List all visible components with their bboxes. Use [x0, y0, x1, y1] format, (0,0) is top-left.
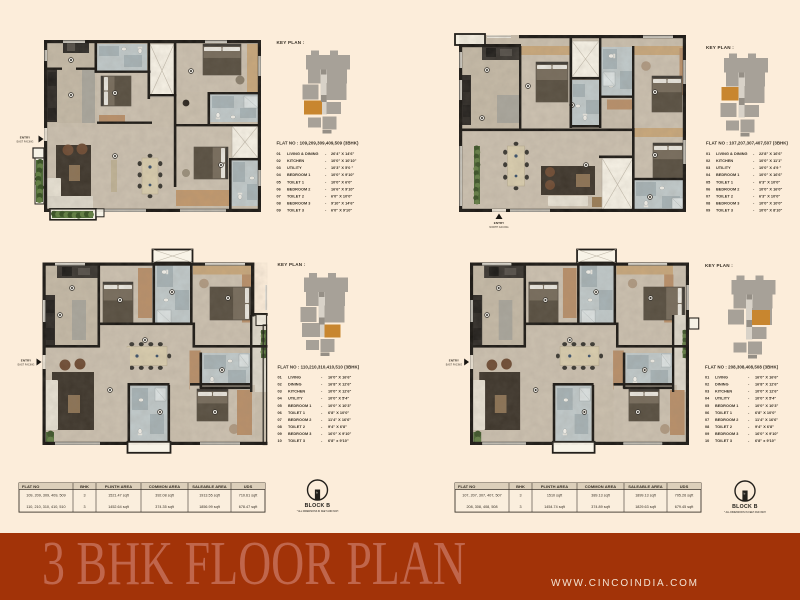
svg-text:11'4" X 16'6": 11'4" X 16'6" — [328, 418, 351, 422]
svg-text:01: 01 — [705, 376, 709, 380]
svg-text:10'0" X 12'6": 10'0" X 12'6" — [755, 390, 779, 394]
svg-text:BEDROOM 3: BEDROOM 3 — [288, 432, 311, 436]
svg-text:TOILET 1: TOILET 1 — [716, 180, 733, 184]
svg-text:3: 3 — [83, 505, 85, 509]
svg-text:LIVING & DINING: LIVING & DINING — [716, 152, 748, 156]
svg-text:705.26 sqft: 705.26 sqft — [675, 494, 693, 498]
svg-text:KITCHEN: KITCHEN — [715, 390, 732, 394]
svg-text:PLINTH AREA: PLINTH AREA — [105, 484, 132, 489]
svg-text:16'0" X 16'6": 16'0" X 16'6" — [328, 376, 352, 380]
svg-text:BHK: BHK — [80, 484, 89, 489]
svg-text:06: 06 — [706, 187, 710, 191]
svg-text:02: 02 — [278, 383, 282, 387]
svg-text:1454.74 sqft: 1454.74 sqft — [544, 505, 565, 509]
svg-text:392.08 sqft: 392.08 sqft — [155, 494, 173, 498]
svg-text:16'8" X 12'6": 16'8" X 12'6" — [755, 383, 779, 387]
svg-text:TOILET 1: TOILET 1 — [288, 411, 305, 415]
svg-text:09: 09 — [706, 209, 710, 213]
svg-text:10'0" X 12'6": 10'0" X 12'6" — [328, 390, 352, 394]
svg-text:10'0" X 16'6": 10'0" X 16'6" — [759, 173, 783, 177]
svg-text:KEY PLAN :: KEY PLAN : — [705, 263, 733, 268]
svg-text:9'4" X 6'8": 9'4" X 6'8" — [755, 425, 774, 429]
svg-text:10'0" X 9'10": 10'0" X 9'10" — [331, 173, 355, 177]
svg-text:EAST FACING: EAST FACING — [17, 140, 34, 143]
svg-text:TOILET 3: TOILET 3 — [716, 209, 733, 213]
svg-text:01: 01 — [278, 376, 282, 380]
svg-text:ENTRY: ENTRY — [449, 359, 459, 363]
svg-text:BEDROOM 3: BEDROOM 3 — [715, 432, 738, 436]
svg-text:EAST FACING: EAST FACING — [446, 363, 462, 366]
svg-text:BEDROOM 1: BEDROOM 1 — [716, 173, 739, 177]
svg-text:10: 10 — [705, 439, 709, 443]
svg-text:6'8" X 10'0": 6'8" X 10'0" — [328, 411, 349, 415]
svg-text:TOILET 3: TOILET 3 — [287, 209, 304, 213]
svg-text:NORTH FACING: NORTH FACING — [489, 226, 508, 229]
svg-text:BEDROOM 2: BEDROOM 2 — [287, 187, 310, 191]
svg-text:FLAT NO : 107,207,307,407,507: FLAT NO : 107,207,307,407,507 (3BHK) — [706, 141, 788, 146]
svg-text:3 BHK FLOOR PLAN: 3 BHK FLOOR PLAN — [42, 530, 466, 598]
svg-text:TOILET 2: TOILET 2 — [715, 425, 732, 429]
svg-text:TOILET 1: TOILET 1 — [287, 180, 304, 184]
svg-text:10'0" X 10'3": 10'0" X 10'3" — [328, 404, 352, 408]
svg-text:1510 sqft: 1510 sqft — [547, 494, 562, 498]
svg-text:6'8" X 10'0": 6'8" X 10'0" — [755, 411, 776, 415]
svg-text:BEDROOM 3: BEDROOM 3 — [287, 202, 310, 206]
svg-text:BEDROOM 2: BEDROOM 2 — [715, 418, 738, 422]
svg-text:16'0" X 9'10": 16'0" X 9'10" — [755, 432, 779, 436]
svg-text:DINING: DINING — [288, 383, 302, 387]
svg-text:1856.99 sqft: 1856.99 sqft — [199, 505, 220, 509]
svg-text:* ALL DIMENSIONS IN FEET AND I: * ALL DIMENSIONS IN FEET AND INCH — [297, 510, 339, 513]
svg-text:COMMON AREA: COMMON AREA — [585, 484, 617, 489]
svg-text:FLAT NO: FLAT NO — [458, 484, 475, 489]
svg-text:1913.55 sqft: 1913.55 sqft — [199, 494, 220, 498]
svg-text:16'0" X 16'6": 16'0" X 16'6" — [755, 376, 779, 380]
svg-text:06: 06 — [277, 187, 281, 191]
svg-text:01: 01 — [706, 152, 710, 156]
svg-text:10'0" X 11'1": 10'0" X 11'1" — [759, 159, 782, 163]
svg-text:3: 3 — [519, 505, 521, 509]
svg-text:FLAT NO : 208,308,408,508 (3B: FLAT NO : 208,308,408,508 (3BHK) — [705, 365, 779, 370]
svg-text:05: 05 — [277, 180, 281, 184]
svg-text:16'0" X 9'10": 16'0" X 9'10" — [328, 432, 352, 436]
svg-text:10'0" X 10'0": 10'0" X 10'0" — [759, 202, 783, 206]
svg-text:10'0" X 5'4": 10'0" X 5'4" — [328, 397, 349, 401]
svg-text:SALEABLE AREA: SALEABLE AREA — [192, 484, 227, 489]
svg-text:107, 207, 307, 407, 507: 107, 207, 307, 407, 507 — [462, 494, 501, 498]
svg-text:10'0" X 8'10": 10'0" X 8'10" — [759, 209, 783, 213]
svg-text:TOILET 2: TOILET 2 — [287, 194, 304, 198]
svg-text:ENTRY: ENTRY — [21, 359, 32, 363]
svg-text:679.45 sqft: 679.45 sqft — [675, 505, 693, 509]
svg-text:EAST FACING: EAST FACING — [18, 363, 35, 366]
svg-text:LIVING: LIVING — [715, 376, 728, 380]
svg-text:BLOCK B: BLOCK B — [305, 503, 331, 509]
svg-text:KEY PLAN :: KEY PLAN : — [277, 40, 305, 45]
svg-text:KEY PLAN :: KEY PLAN : — [278, 262, 306, 267]
svg-text:10'0" X 10'10": 10'0" X 10'10" — [331, 159, 357, 163]
svg-text:03: 03 — [705, 390, 709, 394]
svg-text:374.35 sqft: 374.35 sqft — [155, 505, 173, 509]
svg-text:710.61 sqft: 710.61 sqft — [239, 494, 257, 498]
svg-text:03: 03 — [277, 166, 281, 170]
svg-text:UTILITY: UTILITY — [287, 166, 302, 170]
svg-text:DINING: DINING — [715, 383, 729, 387]
svg-text:10'0" X 5'4": 10'0" X 5'4" — [755, 397, 776, 401]
svg-text:9'4" X 6'8": 9'4" X 6'8" — [328, 425, 347, 429]
svg-text:KITCHEN: KITCHEN — [288, 390, 305, 394]
svg-text:TOILET 1: TOILET 1 — [715, 411, 732, 415]
svg-text:08: 08 — [706, 202, 710, 206]
svg-text:10'0" X 6'0": 10'0" X 6'0" — [331, 180, 352, 184]
svg-text:BEDROOM 1: BEDROOM 1 — [288, 404, 311, 408]
svg-text:6'3" X 10'0": 6'3" X 10'0" — [759, 180, 780, 184]
svg-text:208, 308, 408, 508: 208, 308, 408, 508 — [466, 505, 497, 509]
svg-text:BLOCK B: BLOCK B — [732, 504, 758, 510]
svg-text:TOILET 2: TOILET 2 — [288, 425, 305, 429]
svg-text:UTILITY: UTILITY — [716, 166, 731, 170]
svg-text:05: 05 — [705, 404, 709, 408]
svg-text:10'3" X 5'0 ": 10'3" X 5'0 " — [331, 166, 353, 170]
svg-text:3: 3 — [519, 494, 521, 498]
svg-text:02: 02 — [705, 383, 709, 387]
svg-text:07: 07 — [278, 418, 282, 422]
svg-text:10'0" X 16'0": 10'0" X 16'0" — [759, 187, 783, 191]
svg-text:03: 03 — [278, 390, 282, 394]
svg-text:BEDROOM 1: BEDROOM 1 — [287, 173, 310, 177]
svg-text:6'0" X 9'10": 6'0" X 9'10" — [331, 209, 352, 213]
svg-text:TOILET 2: TOILET 2 — [716, 194, 733, 198]
svg-text:BEDROOM 2: BEDROOM 2 — [288, 418, 311, 422]
svg-text:UDS: UDS — [244, 484, 253, 489]
svg-text:678.47 sqft: 678.47 sqft — [239, 505, 257, 509]
svg-text:08: 08 — [277, 202, 281, 206]
svg-text:9'10" X 14'6": 9'10" X 14'6" — [331, 202, 355, 206]
svg-text:09: 09 — [278, 432, 282, 436]
svg-text:06: 06 — [278, 411, 282, 415]
svg-text:ENTRY: ENTRY — [494, 221, 505, 225]
svg-text:109, 209, 309, 409, 509: 109, 209, 309, 409, 509 — [26, 494, 65, 498]
svg-text:374.89 sqft: 374.89 sqft — [591, 505, 609, 509]
svg-text:LIVING & DINING: LIVING & DINING — [287, 152, 319, 156]
svg-text:FLAT NO: FLAT NO — [22, 484, 39, 489]
svg-text:1829.63 sqft: 1829.63 sqft — [635, 505, 656, 509]
svg-text:09: 09 — [705, 432, 709, 436]
svg-text:02: 02 — [706, 159, 710, 163]
svg-text:01: 01 — [277, 152, 281, 156]
svg-text:26'4" X 14'6": 26'4" X 14'6" — [331, 152, 355, 156]
svg-text:09: 09 — [277, 209, 281, 213]
svg-text:COMMON AREA: COMMON AREA — [149, 484, 181, 489]
svg-text:KITCHEN: KITCHEN — [716, 159, 733, 163]
svg-text:BEDROOM 3: BEDROOM 3 — [716, 202, 739, 206]
svg-text:10'0" X 10'3": 10'0" X 10'3" — [755, 404, 779, 408]
svg-text:1899.13 sqft: 1899.13 sqft — [635, 494, 656, 498]
svg-text:KITCHEN: KITCHEN — [287, 159, 304, 163]
svg-text:FLAT NO : 110,210,310,410,510: FLAT NO : 110,210,310,410,510 (3BHK) — [278, 365, 360, 370]
svg-text:11'4" X 16'6": 11'4" X 16'6" — [755, 418, 778, 422]
svg-text:07: 07 — [705, 418, 709, 422]
svg-text:07: 07 — [277, 194, 281, 198]
svg-text:UDS: UDS — [680, 484, 689, 489]
svg-text:UTILITY: UTILITY — [715, 397, 730, 401]
svg-text:6'8" x 9'10": 6'8" x 9'10" — [328, 439, 349, 443]
svg-text:110, 210, 310, 410, 510: 110, 210, 310, 410, 510 — [26, 505, 65, 509]
svg-text:05: 05 — [706, 180, 710, 184]
svg-text:KEY PLAN :: KEY PLAN : — [706, 45, 734, 50]
svg-text:3: 3 — [83, 494, 85, 498]
svg-text:10'0" X 4'9 ": 10'0" X 4'9 " — [759, 166, 781, 170]
svg-text:08: 08 — [705, 425, 709, 429]
svg-text:TOILET 3: TOILET 3 — [288, 439, 305, 443]
svg-text:08: 08 — [278, 425, 282, 429]
svg-text:16'6" X 9'10": 16'6" X 9'10" — [331, 187, 355, 191]
svg-text:* ALL DIMENSIONS IN FEET AND I: * ALL DIMENSIONS IN FEET AND INCH — [724, 511, 766, 514]
svg-text:10: 10 — [278, 439, 282, 443]
svg-text:05: 05 — [278, 404, 282, 408]
svg-text:6'8" x 9'10": 6'8" x 9'10" — [755, 439, 776, 443]
svg-text:FLAT NO : 109,209,309,409,509: FLAT NO : 109,209,309,409,509 (3BHK) — [277, 141, 359, 146]
svg-text:389.13 sqft: 389.13 sqft — [591, 494, 609, 498]
svg-text:WWW.CINCOINDIA.COM: WWW.CINCOINDIA.COM — [551, 578, 697, 589]
svg-text:TOILET 3: TOILET 3 — [715, 439, 732, 443]
svg-text:PLINTH AREA: PLINTH AREA — [541, 484, 568, 489]
svg-text:LIVING: LIVING — [288, 376, 301, 380]
svg-text:07: 07 — [706, 194, 710, 198]
svg-text:SALEABLE AREA: SALEABLE AREA — [628, 484, 663, 489]
svg-text:1452.64 sqft: 1452.64 sqft — [108, 505, 129, 509]
svg-text:22'8" X 16'6": 22'8" X 16'6" — [759, 152, 783, 156]
svg-text:02: 02 — [277, 159, 281, 163]
svg-text:BEDROOM 2: BEDROOM 2 — [716, 187, 739, 191]
svg-text:03: 03 — [706, 166, 710, 170]
svg-text:16'8" X 12'6": 16'8" X 12'6" — [328, 383, 352, 387]
svg-text:BHK: BHK — [516, 484, 525, 489]
svg-text:06: 06 — [705, 411, 709, 415]
svg-text:1521.47 sqft: 1521.47 sqft — [108, 494, 129, 498]
svg-text:6'3" X 10'0": 6'3" X 10'0" — [759, 194, 780, 198]
svg-text:6'0" X 10'0": 6'0" X 10'0" — [331, 194, 352, 198]
svg-text:ENTRY: ENTRY — [20, 136, 31, 140]
svg-text:UTILITY: UTILITY — [288, 397, 303, 401]
svg-text:BEDROOM 1: BEDROOM 1 — [715, 404, 738, 408]
